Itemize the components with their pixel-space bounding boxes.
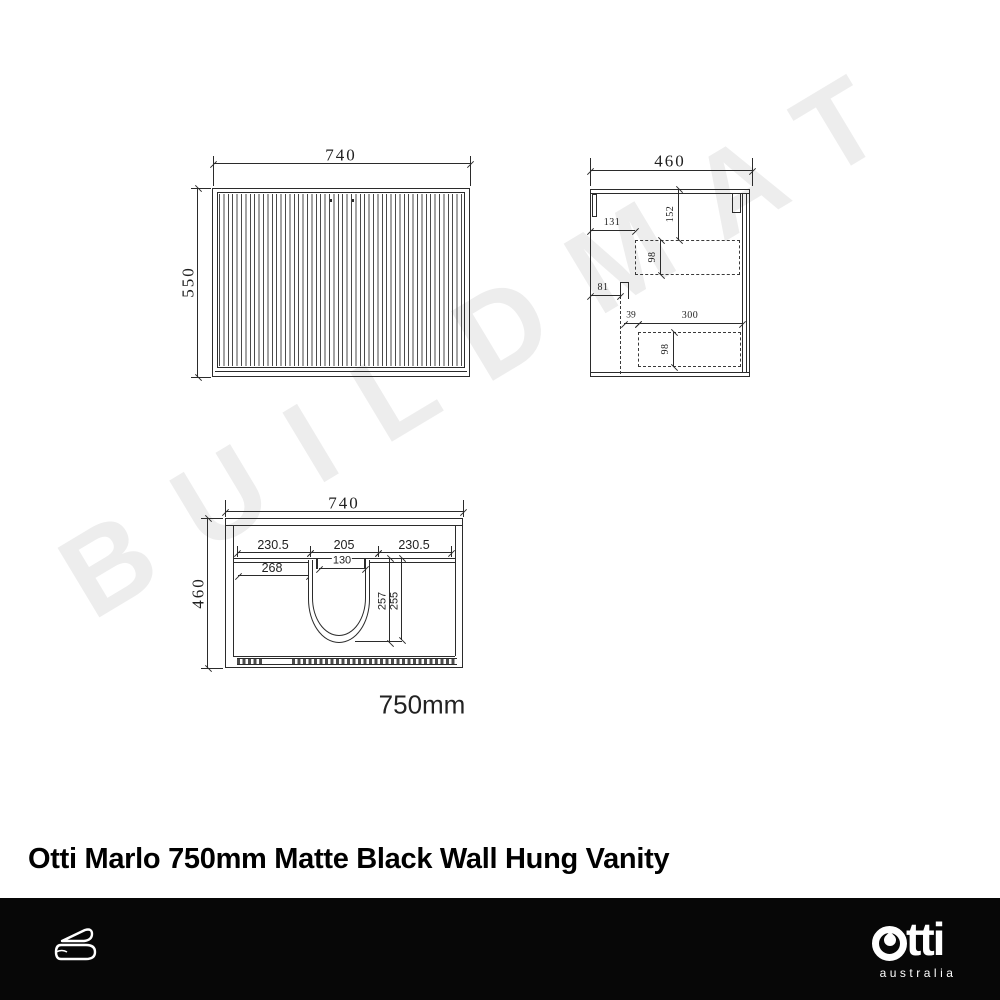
plan-ext-line [201,668,223,669]
front-ext-line [191,377,211,378]
plan-ext-line [225,500,226,517]
plan-dim-230-right: 230.5 [398,539,429,552]
plan-dim-205: 205 [334,539,355,552]
side-depth-dim: 460 [654,153,686,170]
plan-dim-230-left: 230.5 [257,539,288,552]
front-ext-line [213,156,214,186]
front-bottom-edge-line [215,371,467,372]
side-wall-bracket-left [592,194,597,217]
front-hinge-mark [330,199,332,202]
otti-logo-subtext: australia [868,966,968,980]
side-dim-39-line [624,323,638,324]
plan-dim-268: 268 [262,562,283,575]
side-dim-300: 300 [682,311,699,321]
plan-dim-230-right-line [378,552,451,553]
side-dim-98b: 98 [661,344,671,355]
plan-dim-connector [355,641,402,642]
side-dim-152-line [678,189,679,240]
plan-dim-257: 257 [378,592,389,610]
side-back-panel-line [746,193,747,373]
plan-inner-right [455,525,456,656]
plan-depth-dim: 460 [190,577,207,609]
side-dim-131: 131 [604,218,621,228]
footer-bar: BUILDMAT [0,898,1000,1000]
plan-tap-tick [316,558,318,569]
plan-dim-268-line [238,575,309,576]
front-ext-line [191,188,211,189]
plan-inner-bottom [233,656,455,657]
side-dashed-centerline [620,301,621,374]
side-dim-81-line [590,295,620,296]
plan-dim-205-line [310,552,378,553]
plan-width-dim: 740 [328,495,360,512]
front-hinge-mark [352,199,354,202]
side-dim-98b-line [673,332,674,367]
buildmat-watermark: BUILDMAT [0,0,1000,698]
side-top-inner-line [591,193,749,194]
side-dim-39: 39 [626,311,636,321]
side-rail-clip [620,282,629,299]
product-drawing-page: BUILDMAT 740 550 460 152 131 98 81 39 30… [0,0,1000,1000]
front-height-dim: 550 [180,266,197,298]
plan-dim-130: 130 [332,556,352,567]
plan-inner-left [233,525,234,656]
side-dim-81: 81 [598,283,609,293]
product-title: Otti Marlo 750mm Matte Black Wall Hung V… [28,843,669,876]
plan-ext-line [463,500,464,517]
plan-dim-255-line [401,558,402,640]
plan-dim-255: 255 [390,592,401,610]
plan-counter-edge [226,525,462,526]
front-ext-line [470,156,471,186]
side-bottom-inner-line [591,372,749,373]
side-dim-131-line [590,230,635,231]
plan-ext-line [201,518,223,519]
overall-size-label: 750mm [379,690,466,721]
side-dim-98a-line [660,240,661,275]
side-back-panel-line [742,193,743,373]
otti-logo-text: tti [906,916,943,962]
side-pipe-cutout-dashed [638,332,741,367]
side-dim-300-line [638,323,742,324]
side-dim-98a: 98 [648,252,658,263]
plan-strip-gap [262,659,292,664]
plan-basin-u-inner [312,560,366,636]
front-fluted-panel [219,194,463,366]
side-dim-152: 152 [666,206,676,223]
side-wall-bracket-right [732,193,741,213]
plan-dim-230-left-line [237,552,310,553]
front-width-dim: 740 [325,147,357,164]
buildmat-logo-icon [52,926,98,966]
plan-dim-130-line [319,568,365,569]
